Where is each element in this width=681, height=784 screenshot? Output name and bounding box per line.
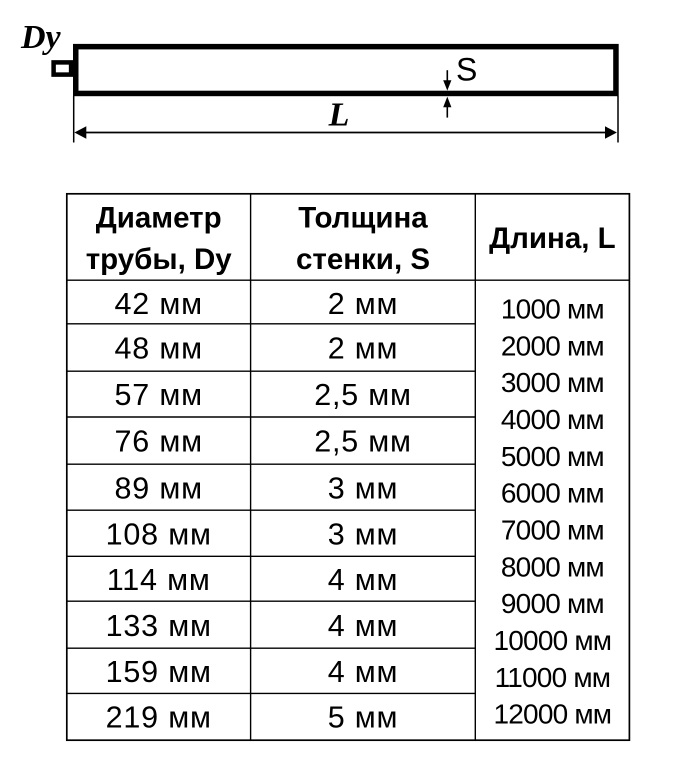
svg-text:2,5 мм: 2,5 мм — [314, 378, 412, 412]
svg-text:12000 мм: 12000 мм — [494, 699, 612, 730]
svg-text:76 мм: 76 мм — [115, 425, 203, 459]
svg-text:4 мм: 4 мм — [328, 563, 399, 597]
svg-text:4000 мм: 4000 мм — [501, 404, 604, 435]
svg-text:3 мм: 3 мм — [328, 471, 399, 505]
svg-text:10000 мм: 10000 мм — [494, 625, 612, 656]
svg-text:Dy: Dy — [20, 19, 62, 56]
svg-text:3 мм: 3 мм — [328, 517, 399, 551]
svg-text:Диаметр: Диаметр — [96, 202, 222, 235]
svg-text:4 мм: 4 мм — [328, 655, 399, 689]
svg-text:8000 мм: 8000 мм — [501, 551, 604, 582]
svg-text:Длина, L: Длина, L — [489, 222, 616, 255]
svg-text:219 мм: 219 мм — [106, 701, 212, 735]
svg-text:48 мм: 48 мм — [115, 332, 203, 366]
svg-text:2,5 мм: 2,5 мм — [314, 425, 412, 459]
svg-text:Толщина: Толщина — [298, 202, 428, 235]
svg-text:114 мм: 114 мм — [107, 563, 211, 597]
svg-text:89 мм: 89 мм — [115, 471, 203, 505]
svg-text:стенки, S: стенки, S — [296, 243, 430, 276]
svg-text:4 мм: 4 мм — [328, 609, 399, 643]
svg-text:57 мм: 57 мм — [115, 378, 203, 412]
svg-text:159 мм: 159 мм — [106, 655, 212, 689]
svg-text:7000 мм: 7000 мм — [501, 515, 604, 546]
svg-text:2000 мм: 2000 мм — [501, 330, 604, 361]
svg-text:5 мм: 5 мм — [328, 701, 399, 735]
svg-text:5000 мм: 5000 мм — [501, 441, 604, 472]
svg-text:трубы, Dy: трубы, Dy — [86, 243, 233, 276]
svg-text:6000 мм: 6000 мм — [501, 478, 604, 509]
svg-text:11000 мм: 11000 мм — [495, 662, 611, 693]
svg-text:108 мм: 108 мм — [106, 517, 212, 551]
svg-text:2 мм: 2 мм — [328, 332, 399, 366]
svg-text:9000 мм: 9000 мм — [501, 588, 604, 619]
svg-text:3000 мм: 3000 мм — [501, 367, 604, 398]
svg-text:1000 мм: 1000 мм — [501, 294, 604, 325]
svg-text:S: S — [456, 52, 477, 88]
svg-text:L: L — [328, 97, 350, 134]
svg-text:42 мм: 42 мм — [115, 287, 203, 321]
svg-text:133 мм: 133 мм — [106, 609, 212, 643]
svg-text:2 мм: 2 мм — [328, 287, 399, 321]
